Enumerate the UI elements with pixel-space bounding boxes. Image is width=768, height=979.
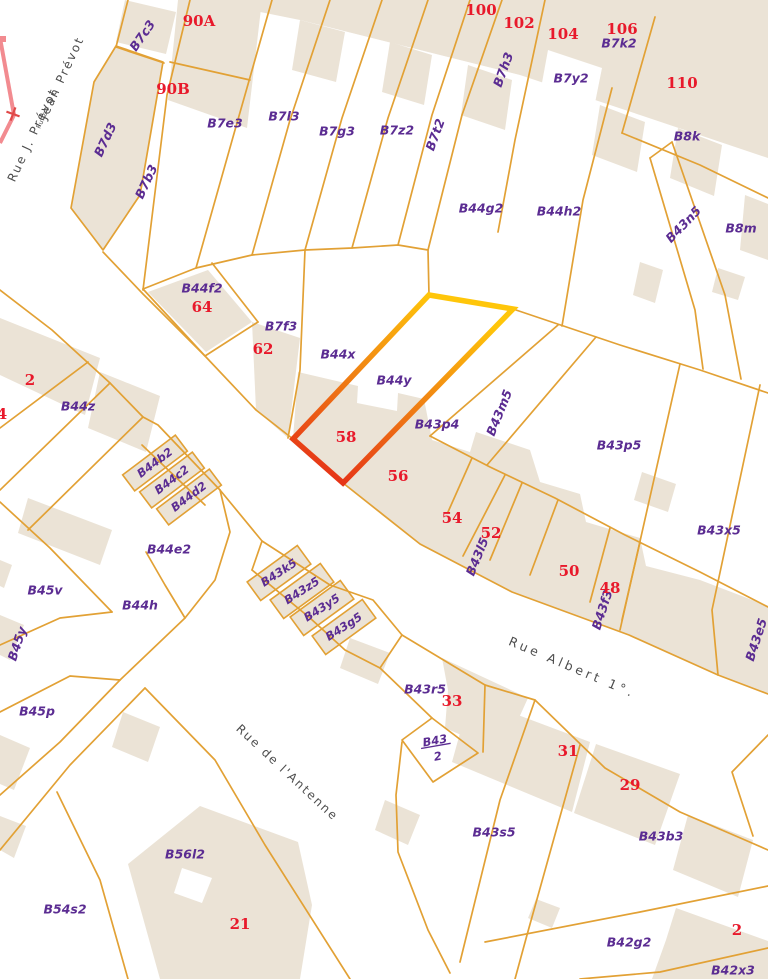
parcel-id-label: B7z2 [380,123,414,138]
parcel-id-label: B44h [122,598,158,613]
street-number-label: 90B [156,80,190,98]
street-number-label: 33 [442,692,463,710]
parcel-boundary [732,735,768,836]
road-axis-line [0,38,14,115]
fraction-denominator: 2 [433,749,443,764]
parcel-id-label: B44y [376,373,412,388]
parcel-id-label: B42g2 [607,935,652,950]
parcel-id-label: B8k [674,129,701,144]
parcel-id-label: B43b3 [639,829,684,844]
parcel-id-label: B43s5 [472,825,515,840]
street-number-label: 52 [481,524,502,542]
street-number-label: 50 [559,562,580,580]
parcel-boundary [252,541,262,570]
building-footprint [292,20,345,82]
parcel-id-label: B44f2 [181,281,222,296]
street-number-label: 48 [600,579,621,597]
parcel-id-label: B8m [725,221,756,236]
parcel-id-label: B7f3 [265,319,297,334]
parcel-id-label: B54s2 [43,902,86,917]
parcel-fraction-label: B432 [419,731,454,766]
street-name-label: Rue Albert 1°. [507,633,639,700]
street-number-label: 56 [388,467,409,485]
building-footprint [128,806,312,979]
street-name-label: Rue de l'Antenne [233,722,341,824]
parcel-id-label: B43p4 [415,417,460,432]
parcel-id-label: B45p [19,704,55,719]
street-number-label: 58 [336,428,357,446]
building-footprint [673,815,753,897]
parcel-id-label: B7g3 [319,124,355,139]
street-number-label: 54 [442,509,463,527]
parcel-boundary [57,792,128,979]
parcel-boundary [650,158,703,369]
parcel-id-label: B43p5 [597,438,642,453]
street-number-label: 21 [230,915,251,933]
parcel-id-label: B44e2 [147,542,191,557]
street-number-label: 110 [666,74,697,92]
street-number-label: 62 [253,340,274,358]
street-number-label: 106 [606,20,637,38]
street-number-label: 64 [192,298,213,316]
parcel-id-label: B44h2 [537,204,582,219]
building-footprint [71,46,163,250]
parcel-id-label: B43x5 [697,523,741,538]
building-footprint [112,712,160,762]
parcel-id-label: B44x [321,347,357,362]
parcel-id-label: B7l3 [268,109,299,124]
street-number-label: 90A [183,12,216,30]
parcel-id-label: B43n5 [662,203,704,246]
street-number-label: 2 [732,921,742,939]
parcel-id-label: B7e3 [207,116,242,131]
parcel-id-label: B7t2 [422,117,447,153]
parcel-id-label: B7y2 [553,71,588,86]
street-number-label: 100 [465,1,496,19]
street-number-label: 29 [620,776,641,794]
parcel-boundary [650,142,672,158]
building-footprint [633,262,663,303]
street-number-label: 102 [503,14,534,32]
parcel-id-label: B42x3 [711,963,755,978]
parcel-id-label: B43m5 [483,387,515,438]
cadastre-map-viewport[interactable]: B7c3B7d3B7b3B7e3B7l3B7g3B7z2B7t2B7h3B7y2… [0,0,768,979]
road-marker-layer [0,36,22,143]
parcel-id-label: B56l2 [165,847,205,862]
parcel-boundary [0,676,120,712]
street-number-label: 104 [547,25,578,43]
parcel-id-label: B44g2 [459,201,504,216]
parcel-id-label: B44z [61,399,96,414]
parcel-boundary [185,490,230,618]
building-footprint [0,560,12,588]
cadastre-map-canvas[interactable]: B7c3B7d3B7b3B7e3B7l3B7g3B7z2B7t2B7h3B7y2… [0,0,768,979]
street-number-label: 31 [558,742,579,760]
fraction-numerator: B43 [421,731,448,749]
building-footprint [382,42,432,105]
road-axis-node [0,36,6,42]
parcel-id-label: B45v [27,583,63,598]
parcel-id-label: B43r5 [404,682,446,697]
street-number-label: 4 [0,405,7,423]
street-number-label: 2 [25,371,35,389]
building-footprint [88,372,160,452]
street-name-label: Jean Prévot [36,34,87,122]
